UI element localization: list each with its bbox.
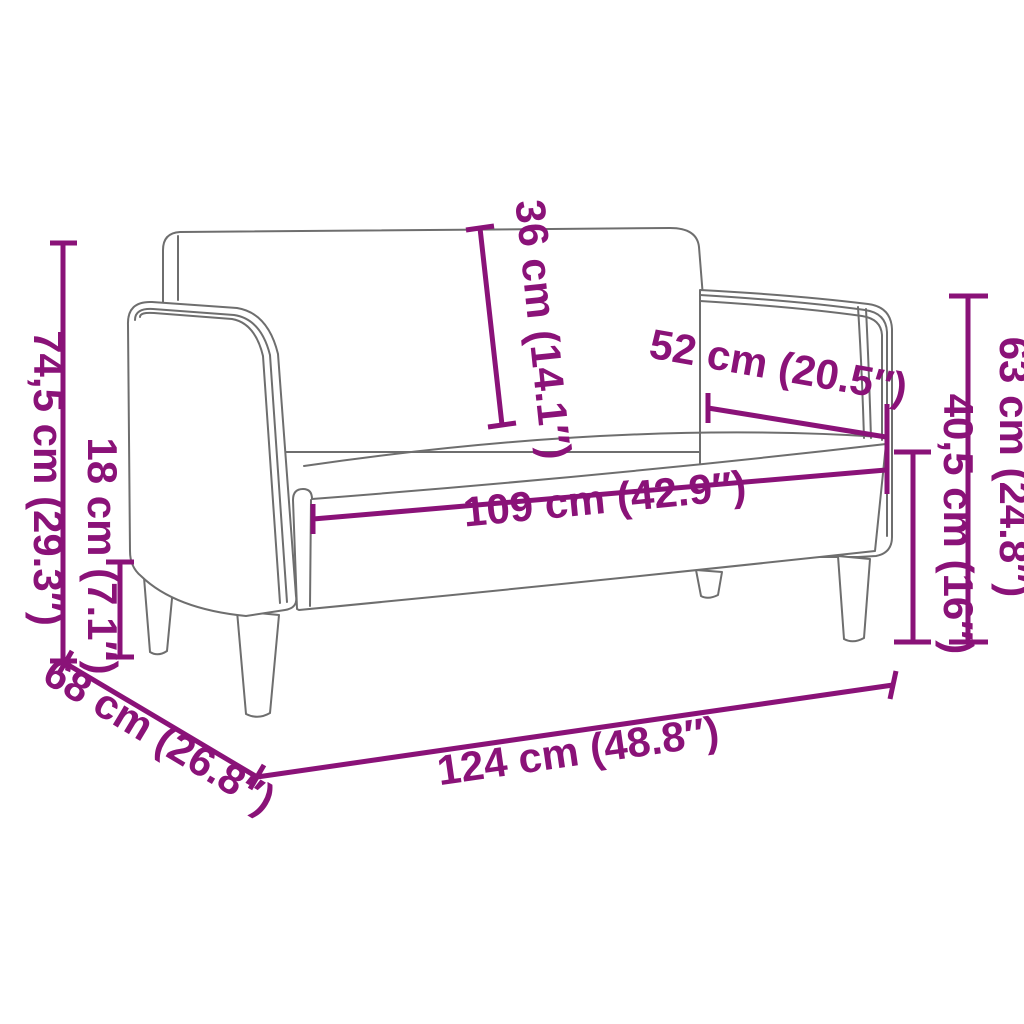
dimension-total-width: 124 cm (48.8″) bbox=[257, 671, 896, 794]
sofa-artwork bbox=[128, 228, 892, 717]
dimension-leg-height-label: 18 cm (7.1″) bbox=[79, 437, 126, 674]
dimension-leg-height: 18 cm (7.1″) bbox=[79, 437, 134, 674]
dimension-diagram: 74,5 cm (29.3″) 18 cm (7.1″) 36 cm (14.1… bbox=[0, 0, 1024, 1024]
leg-front-left bbox=[237, 611, 279, 717]
dimension-seat-height-label: 40,5 cm (16″) bbox=[935, 394, 982, 655]
leg-back-right bbox=[696, 570, 722, 598]
leg-front-right bbox=[838, 556, 870, 641]
dimension-seat-height-line bbox=[894, 452, 931, 642]
dimension-armrest-height-label: 63 cm (24.8″) bbox=[991, 337, 1024, 598]
dimension-total-width-label: 124 cm (48.8″) bbox=[434, 707, 722, 794]
sofa-seat-and-base bbox=[293, 444, 886, 610]
dimension-seat-height: 40,5 cm (16″) bbox=[894, 394, 982, 655]
sofa-dimension-drawing: 74,5 cm (29.3″) 18 cm (7.1″) 36 cm (14.1… bbox=[0, 0, 1024, 1024]
dimension-total-height: 74,5 cm (29.3″) bbox=[25, 243, 77, 661]
dimension-total-height-label: 74,5 cm (29.3″) bbox=[25, 330, 72, 626]
